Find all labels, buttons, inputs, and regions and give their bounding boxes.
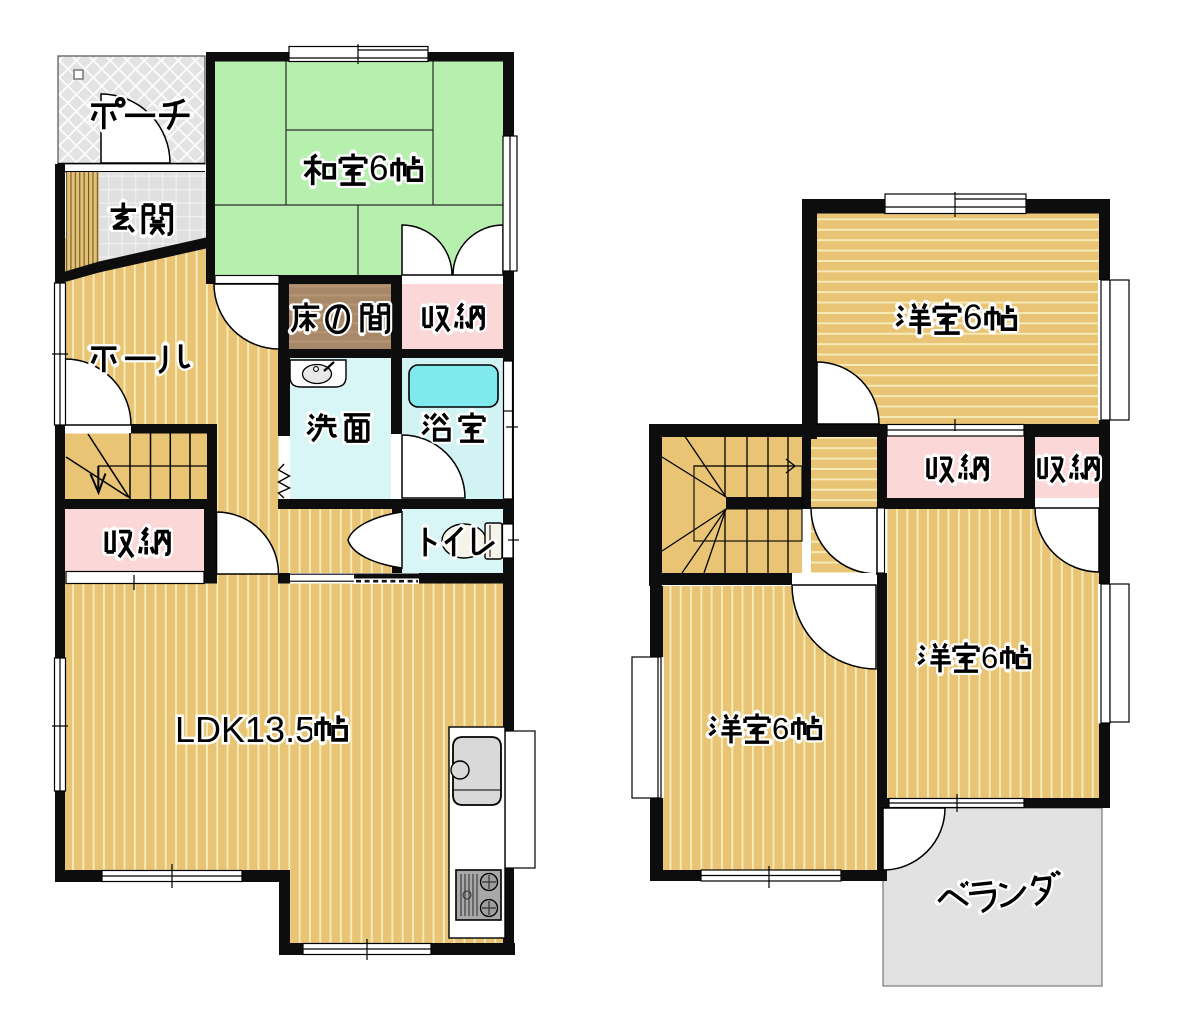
svg-text:6: 6 — [963, 298, 982, 337]
svg-text:6: 6 — [772, 711, 789, 746]
svg-text:6: 6 — [981, 640, 998, 675]
svg-text:6: 6 — [369, 149, 388, 188]
svg-text:LDK13.5: LDK13.5 — [175, 709, 315, 750]
